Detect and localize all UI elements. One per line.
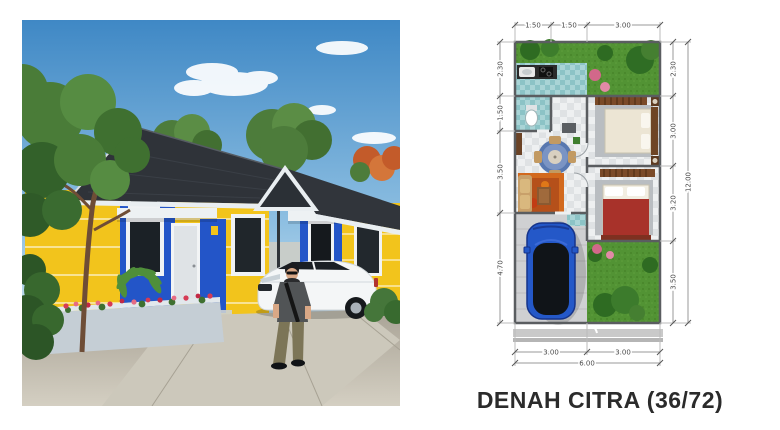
- dim-bottom-2: 3.00: [615, 349, 631, 357]
- dim-top-1: 1.50: [525, 22, 541, 30]
- blue-car-top-view: [524, 221, 586, 325]
- front-garden: [587, 241, 660, 323]
- porch-tiles: [567, 214, 587, 226]
- dim-left-2: 1.50: [497, 105, 505, 121]
- pillow: [641, 134, 650, 149]
- red-blanket: [603, 199, 649, 237]
- wardrobe: [595, 97, 647, 105]
- kitchen: [515, 63, 587, 96]
- dim-right-3: 3.20: [670, 195, 678, 211]
- pillow: [627, 187, 645, 196]
- pillow: [605, 187, 623, 196]
- pillow: [641, 113, 650, 128]
- dim-bottom-total: 6.00: [579, 360, 595, 368]
- bathroom: [515, 96, 551, 131]
- floor-plan-drawing: 1.50 1.50 3.00 2.30 1.50 3.50 4.70 2.30 …: [455, 5, 725, 380]
- dim-top-3: 3.00: [615, 22, 631, 30]
- side-cabinet: [516, 133, 522, 155]
- floor-plan-caption: DENAH CITRA (36/72): [465, 387, 735, 414]
- cabinet: [562, 123, 576, 133]
- bedroom-1: [595, 97, 659, 165]
- house-render-image: [22, 20, 400, 406]
- living-area: [518, 173, 564, 217]
- side-mirror: [524, 247, 530, 253]
- house-render-scene: [22, 20, 400, 406]
- dim-right-4: 3.50: [670, 274, 678, 290]
- plant: [573, 137, 580, 144]
- sunglasses: [287, 272, 298, 275]
- dim-right-2: 3.00: [670, 123, 678, 139]
- car-grille: [258, 284, 272, 291]
- shoe: [291, 360, 305, 367]
- tail-light: [374, 278, 378, 287]
- carport: [515, 213, 587, 325]
- dim-top-2: 1.50: [561, 22, 577, 30]
- shoe: [271, 363, 287, 370]
- dim-right-1: 2.30: [670, 61, 678, 77]
- toilet: [526, 110, 538, 126]
- dim-right-total: 12.00: [685, 172, 693, 192]
- side-mirror: [572, 247, 578, 253]
- dim-left-3: 3.50: [497, 164, 505, 180]
- dim-bottom-1: 3.00: [543, 349, 559, 357]
- car-roof-glass: [533, 243, 569, 315]
- dim-left-4: 4.70: [497, 260, 505, 276]
- dim-left-1: 2.30: [497, 61, 505, 77]
- brochure-canvas: 1.50 1.50 3.00 2.30 1.50 3.50 4.70 2.30 …: [0, 0, 780, 430]
- door-canopy: [117, 208, 217, 218]
- floor-plan-figure: 1.50 1.50 3.00 2.30 1.50 3.50 4.70 2.30 …: [455, 5, 725, 425]
- headboard: [651, 107, 658, 155]
- street-strip: [513, 323, 663, 342]
